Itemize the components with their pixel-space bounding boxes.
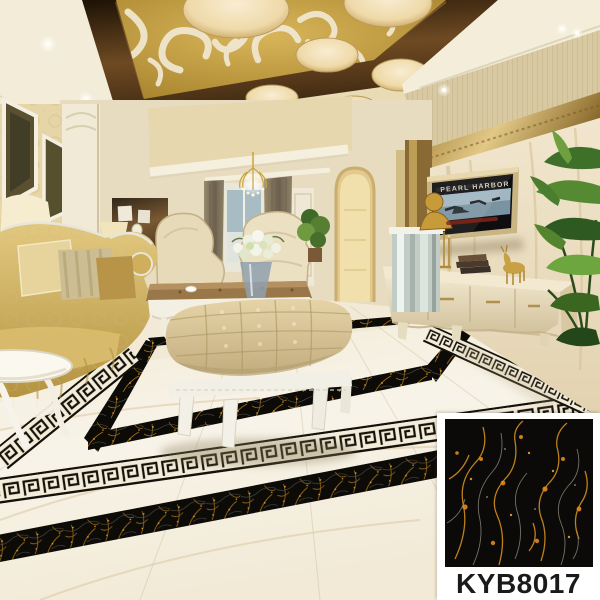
decor-plate	[138, 210, 150, 223]
spotlight-icon	[442, 88, 446, 92]
teacup	[186, 286, 197, 292]
spotlight-icon	[45, 41, 51, 47]
tile-showroom-photo: PEARL HARBOR K	[0, 0, 600, 600]
ottoman-shadow	[160, 438, 356, 466]
spotlight-icon	[560, 27, 564, 31]
product-swatch-card: KYB8017	[437, 413, 600, 600]
pillow	[96, 256, 136, 300]
decor-plate	[118, 206, 133, 222]
arched-doorway	[336, 168, 374, 302]
spotlight-icon	[575, 31, 579, 35]
pilaster	[62, 104, 100, 242]
drum-light	[296, 38, 358, 72]
product-tile-image	[445, 419, 593, 567]
plant-pot	[308, 248, 322, 262]
book-stack	[456, 254, 491, 274]
product-code-label: KYB8017	[437, 568, 600, 599]
